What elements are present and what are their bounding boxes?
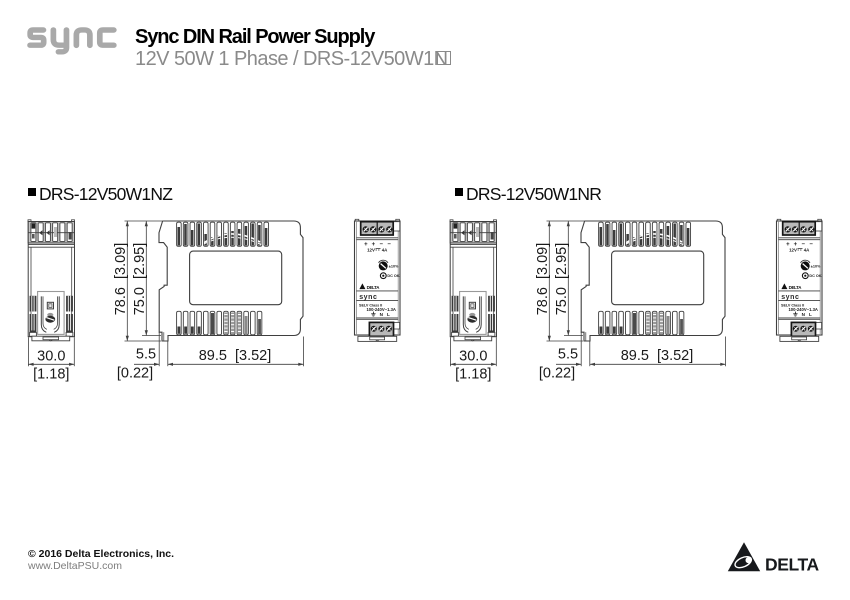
svg-text:75.0 [2.95]: 75.0 [2.95] xyxy=(554,243,570,316)
svg-text:±10%: ±10% xyxy=(389,265,399,269)
svg-text:DC OK: DC OK xyxy=(387,274,399,278)
svg-text:30.0: 30.0 xyxy=(37,348,65,364)
svg-text:89.5 [3.52]: 89.5 [3.52] xyxy=(621,348,694,364)
svg-text:75.0 [2.95]: 75.0 [2.95] xyxy=(132,243,148,316)
svg-text:DELTA: DELTA xyxy=(789,285,803,290)
svg-text:DELTA: DELTA xyxy=(367,285,381,290)
svg-text:12V: 12V xyxy=(789,247,797,252)
svg-text:sync: sync xyxy=(781,294,799,301)
svg-text:±10%: ±10% xyxy=(811,265,821,269)
svg-text:DC OK: DC OK xyxy=(809,274,821,278)
svg-text:4A: 4A xyxy=(804,247,810,252)
svg-text:4A: 4A xyxy=(382,247,388,252)
svg-text:L: L xyxy=(809,312,812,317)
svg-text:5.5: 5.5 xyxy=(136,347,156,363)
svg-text:12V: 12V xyxy=(367,247,375,252)
svg-text:[1.18]: [1.18] xyxy=(33,367,69,383)
svg-text:sync: sync xyxy=(359,294,377,301)
svg-text:[0.22]: [0.22] xyxy=(539,366,575,382)
svg-text:30.0: 30.0 xyxy=(459,348,487,364)
svg-text:78.6 [3.09]: 78.6 [3.09] xyxy=(113,243,129,316)
svg-text:DELTA: DELTA xyxy=(765,555,819,575)
svg-text:5.5: 5.5 xyxy=(558,347,578,363)
svg-text:[1.18]: [1.18] xyxy=(455,367,491,383)
svg-text:78.6 [3.09]: 78.6 [3.09] xyxy=(535,243,551,316)
svg-text:L: L xyxy=(387,312,390,317)
svg-text:[0.22]: [0.22] xyxy=(117,366,153,382)
svg-text:89.5 [3.52]: 89.5 [3.52] xyxy=(199,348,272,364)
